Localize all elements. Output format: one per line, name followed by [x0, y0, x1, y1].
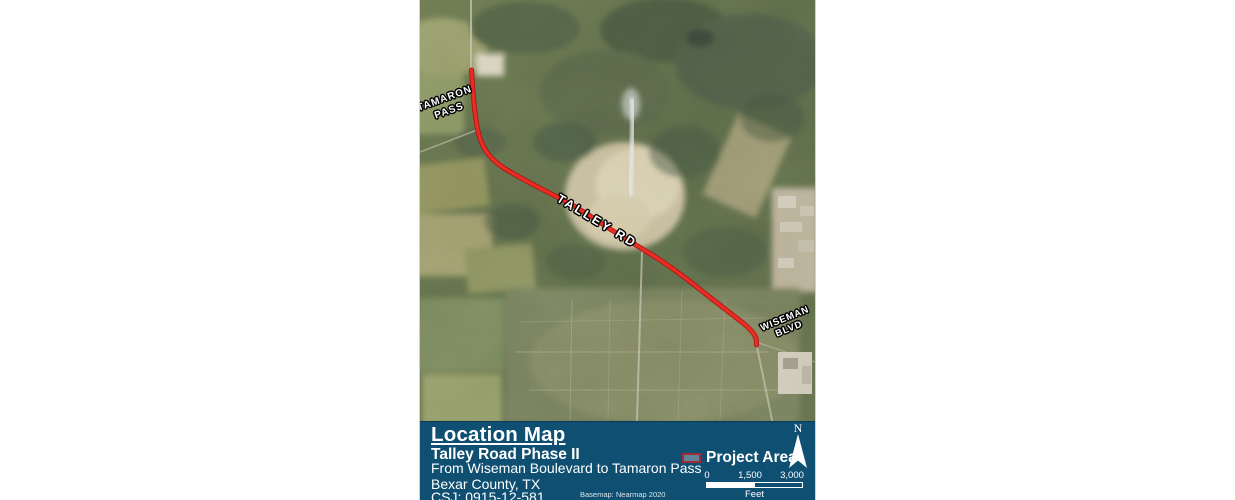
- scale-unit: Feet: [706, 489, 803, 500]
- title-text-group: Location Map Talley Road Phase II From W…: [431, 424, 702, 500]
- legend: Project Area: [682, 449, 797, 467]
- map-title-block: Location Map Talley Road Phase II From W…: [420, 421, 815, 500]
- project-extent: From Wiseman Boulevard to Tamaron Pass: [431, 462, 702, 475]
- north-label: N: [786, 422, 810, 434]
- north-arrow-icon: [788, 434, 808, 470]
- scale-tick: 3,000: [780, 470, 804, 481]
- scale-bar: 0 1,500 3,000 Feet: [702, 470, 806, 500]
- page: TAMARON PASS TALLEY RD WISEMAN BLVD Loca…: [0, 0, 1235, 500]
- project-area-swatch-icon: [682, 453, 701, 463]
- north-arrow: N: [786, 422, 810, 470]
- scale-tick: 0: [704, 470, 709, 481]
- location-map: TAMARON PASS TALLEY RD WISEMAN BLVD Loca…: [420, 0, 815, 500]
- scale-bar-fill: [707, 483, 755, 487]
- map-title: Location Map: [431, 424, 702, 446]
- basemap-credit: Basemap: Nearmap 2020: [580, 490, 665, 499]
- scale-tick: 1,500: [738, 470, 762, 481]
- scale-bar-graphic: [706, 482, 803, 488]
- legend-label: Project Area: [706, 449, 797, 467]
